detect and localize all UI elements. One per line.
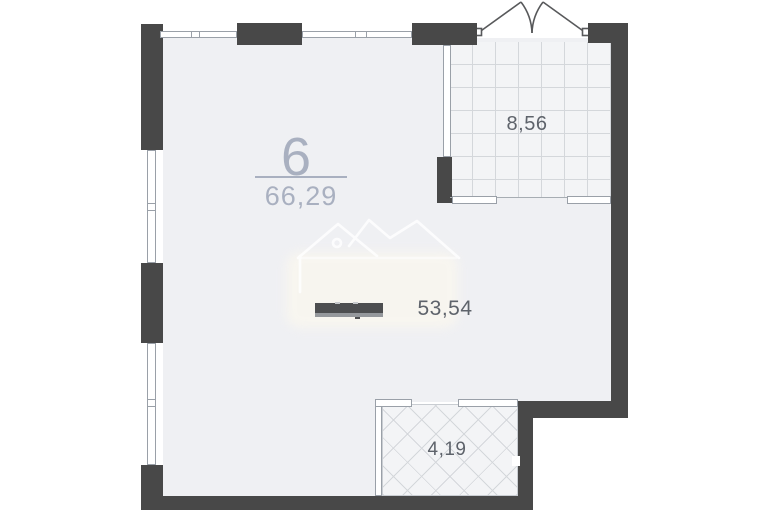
floor-plan-canvas: 6 66,29 8,56 53,54 4,19 [0,0,770,510]
window-mullion [148,210,155,211]
area-label-balcony: 4,19 [408,439,486,461]
window-mullion [191,32,192,37]
sill-loggia-left [452,196,497,204]
window-mullion [148,406,155,407]
window-left-lower [147,343,156,465]
window-mullion [199,32,200,37]
sill-balcony-right [458,399,518,407]
window-mullion [148,203,155,204]
wall-left-top [141,24,163,150]
window-balcony-side [375,399,382,496]
counter-notch [335,302,340,304]
window-mullion [355,32,356,37]
counter-tick [355,317,360,319]
window-mullion [148,399,155,400]
window-top-middle [302,31,412,38]
window-loggia-left [443,45,451,157]
total-area-label: 66,29 [246,183,356,210]
wall-left-middle [141,263,163,343]
wall-bottom [141,496,533,510]
window-top-left [160,31,237,38]
unit-number-divider [255,176,347,178]
wall-top-segment-2 [412,23,477,45]
window-left-upper [147,150,156,263]
sill-loggia-right [567,196,611,204]
wall-balcony-right [518,401,533,496]
window-mullion [366,32,367,37]
plan-overlay [0,0,770,510]
wall-notch [512,456,520,466]
sill-balcony-left [375,399,412,407]
wall-right [611,23,628,418]
wall-top-segment-1 [237,23,302,45]
watermark-logo-icon [298,220,459,292]
wall-southeast [533,401,628,418]
area-label-main-room: 53,54 [405,297,485,321]
counter-vent-block-icon [315,303,383,317]
area-label-loggia: 8,56 [487,113,567,136]
counter-notch [353,302,358,304]
double-swing-door-icon [475,2,590,36]
